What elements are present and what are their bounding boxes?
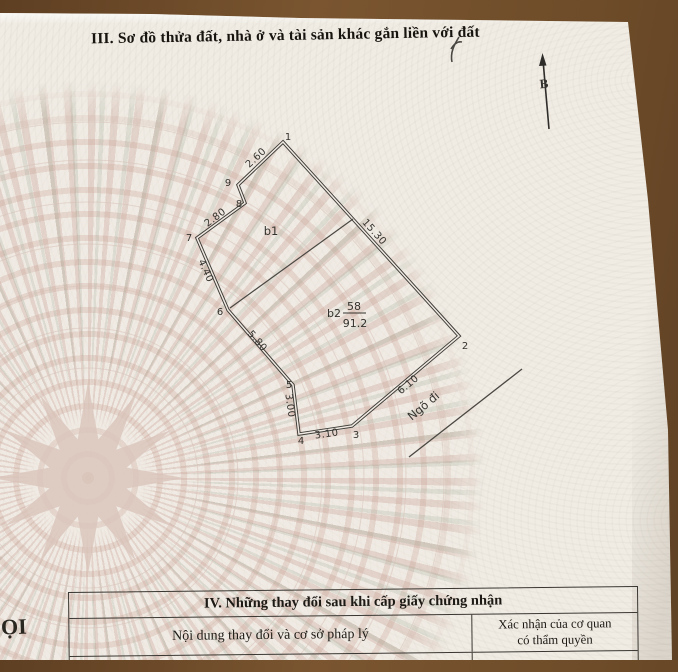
zone-b1-label: b1 (264, 224, 279, 238)
zone-b2-label-group: b2 58 91.2 (327, 300, 367, 330)
zone-divider-line (230, 219, 353, 308)
confirm-header-line1: Xác nhận của cơ quan (498, 616, 612, 633)
north-arrow-head (539, 53, 547, 66)
handwritten-mark (451, 37, 462, 62)
section4-title: IV. Những thay đổi sau khi cấp giấy chứn… (204, 592, 503, 612)
vertex-label: 1 (285, 132, 291, 143)
section4-header-row: Nội dung thay đổi và cơ sở pháp lý Xác n… (69, 613, 637, 657)
empty-content-cell (70, 653, 473, 671)
edge-length-label: 4.40 (195, 258, 215, 284)
column-header-content: Nội dung thay đổi và cơ sở pháp lý (69, 615, 472, 656)
vertex-label: 7 (186, 233, 192, 244)
zone-b2-label: b2 (327, 307, 341, 320)
confirm-header-line2: có thẩm quyền (517, 632, 593, 649)
parcel-area: 91.2 (343, 317, 368, 330)
north-label: B (539, 76, 549, 92)
photo-of-land-certificate: { "document": { "section3_title": "III. … (0, 0, 678, 660)
vertex-label: 9 (225, 178, 231, 189)
edge-length-label: 6.10 (396, 373, 421, 397)
vertex-label: 2 (462, 341, 468, 352)
parcel-diagram: B 1 2 3 4 5 6 7 8 9 2.60 15.30 6.10 3. (0, 0, 678, 660)
content-header-text: Nội dung thay đổi và cơ sở pháp lý (172, 626, 369, 644)
parcel-boundary (197, 142, 459, 434)
vertex-label: 6 (217, 307, 223, 318)
certificate-paper: III. Sơ đồ thửa đất, nhà ở và tài sản kh… (0, 0, 678, 660)
vertex-label: 3 (353, 430, 359, 441)
vertex-label: 5 (286, 380, 292, 391)
vertex-label: 4 (298, 436, 304, 447)
north-arrow: B (539, 53, 549, 129)
section4-changes-table: IV. Những thay đổi sau khi cấp giấy chứn… (68, 586, 639, 672)
column-header-confirmation: Xác nhận của cơ quan có thẩm quyền (472, 613, 637, 652)
alley-label: Ngõ đi (405, 389, 442, 424)
alley-far-line (409, 369, 522, 457)
edge-length-label: 3.10 (314, 427, 339, 441)
edge-length-label: 5.80 (245, 329, 269, 354)
edge-length-label: 3.00 (282, 393, 296, 418)
vertex-label: 8 (236, 199, 242, 210)
parcel-number: 58 (347, 300, 361, 313)
